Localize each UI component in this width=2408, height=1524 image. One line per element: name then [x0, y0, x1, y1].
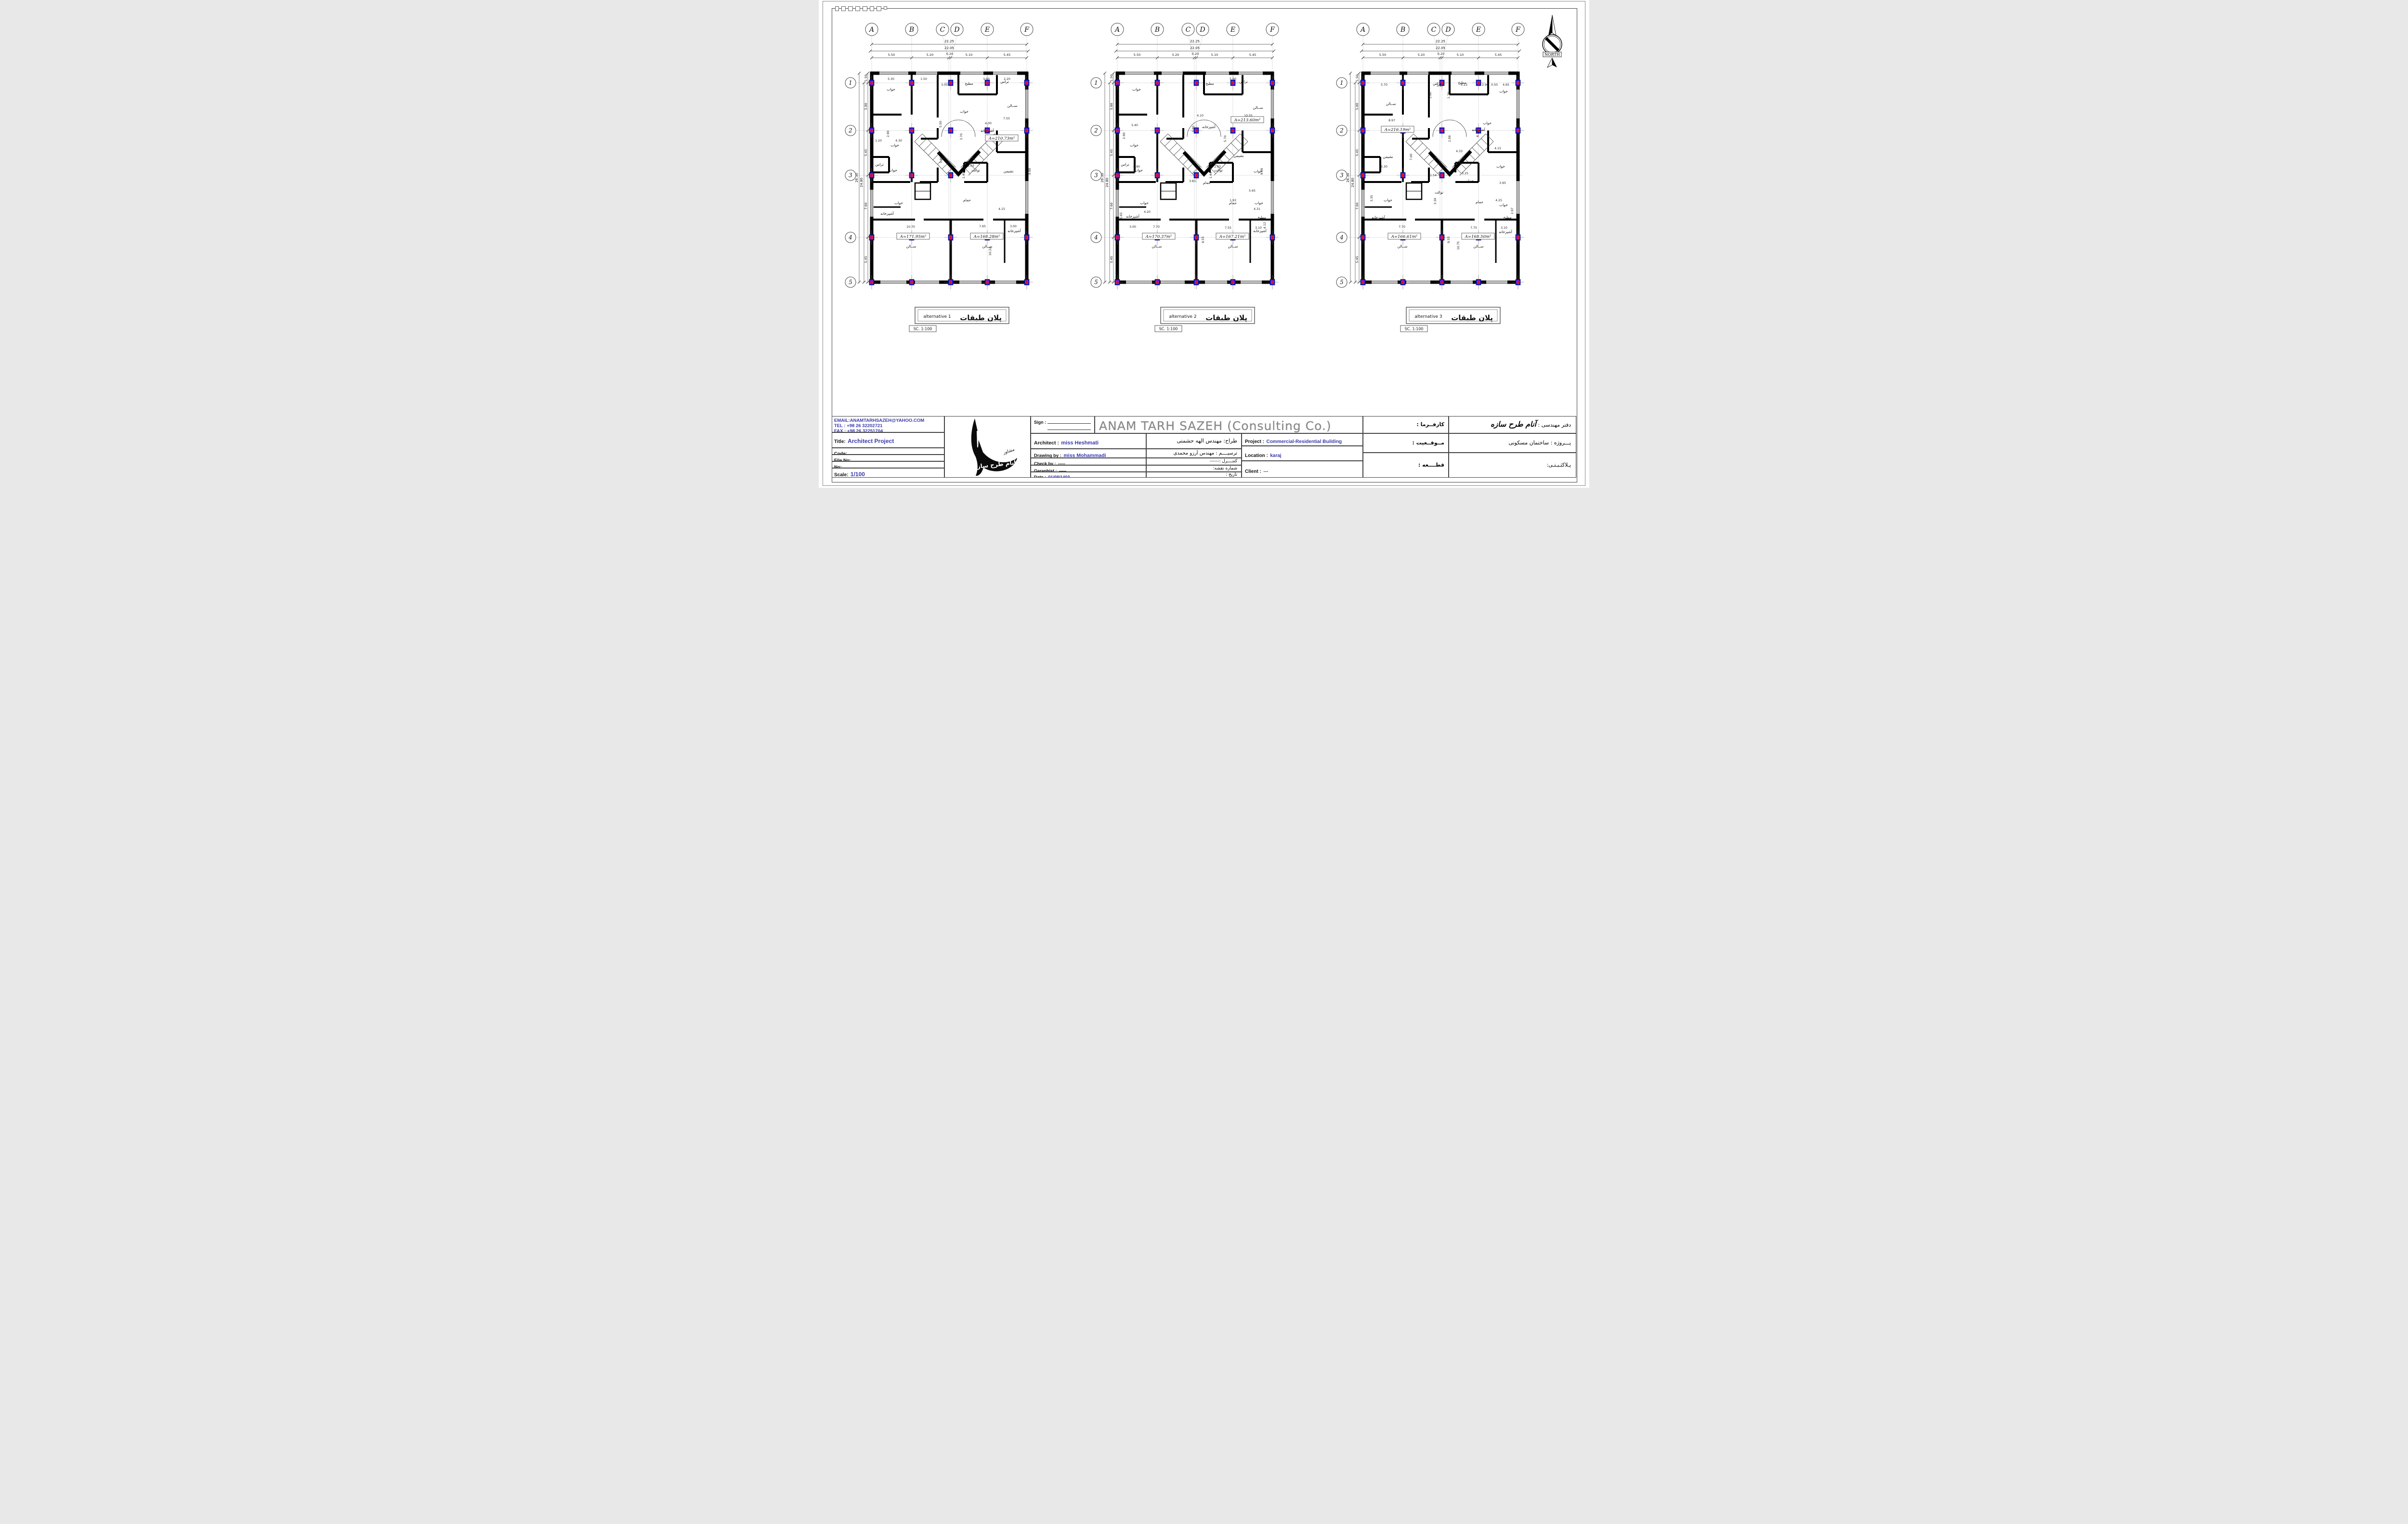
no-label: No: — [834, 465, 842, 468]
dim-label: 2.97 — [1511, 208, 1514, 214]
column-marker-core — [871, 174, 873, 177]
grid-number: 3 — [1340, 172, 1344, 179]
caption-title-fa: پلان طبقات — [1205, 313, 1247, 323]
dim-label: 3.80 — [1192, 126, 1195, 132]
grid-number: 5 — [849, 279, 852, 286]
corner-mark — [855, 6, 860, 11]
grid-number: 3 — [849, 172, 852, 179]
room-label: خواب — [889, 168, 897, 172]
stair-tread — [1169, 143, 1177, 151]
floor-plan-alternative-2: 22.2522.055.505.200.205.105.4526.3024.80… — [1088, 13, 1315, 350]
room-label: خواب — [890, 143, 899, 147]
dim-label: 5.45 — [1495, 53, 1502, 57]
corner-mark — [863, 6, 867, 11]
client-value: --- — [1263, 469, 1268, 474]
grid-letter: E — [1476, 26, 1481, 34]
dim-label: 1.90 — [1429, 92, 1432, 99]
dim-label: 4.20 — [1144, 210, 1151, 214]
column-marker-core — [1478, 281, 1479, 284]
company-banner: ANAM TARH SAZEH (Consulting Co.) — [1095, 416, 1363, 433]
dim-label: 7.60 — [864, 203, 868, 209]
dim-label: 3.70 — [960, 133, 963, 140]
check-by-box: Check by : ----- — [1031, 458, 1146, 465]
dim-label: 7.55 — [1225, 226, 1231, 230]
dim-label: 2.03 — [968, 164, 974, 168]
corner-mark — [841, 6, 846, 11]
grid-letter: E — [984, 26, 990, 34]
column-marker-core — [1402, 281, 1404, 284]
corner-mark — [835, 6, 839, 11]
dim-label: 22.25 — [1190, 39, 1200, 43]
room-label: خواب — [1132, 87, 1141, 91]
dim-label: 1.70 — [1447, 92, 1451, 99]
fa-qateh-box: قطــــعه : — [1363, 453, 1449, 478]
column-marker-core — [1362, 174, 1364, 177]
column-marker-core — [871, 130, 873, 132]
column-marker-core — [1156, 82, 1158, 84]
stair-landing — [942, 120, 975, 137]
column-marker-core — [1402, 174, 1404, 177]
room-label: خواب — [894, 201, 903, 205]
room-label: حمام — [963, 198, 971, 202]
dim-label: 4.90 — [1133, 165, 1140, 169]
column-marker-core — [950, 281, 952, 284]
fa-tarsim-box: ترسیــــم : مهندس آرزو محمدی — [1146, 449, 1242, 458]
dim-label: 5.45 — [1110, 256, 1113, 263]
dim-label: 5.50 — [1379, 53, 1386, 57]
dim-label: 9.88 — [1260, 168, 1264, 175]
project-box: Project : Commercial-Residential Buildin… — [1242, 433, 1363, 446]
area-label: A=168.28m² — [973, 234, 1000, 239]
dim-label: 3.00 — [941, 83, 948, 87]
corner-mark — [877, 6, 881, 11]
column-marker-core — [950, 82, 952, 84]
fileno-label: File No: — [834, 458, 851, 461]
project-label: Project : — [1245, 439, 1264, 444]
dim-label: 5.20 — [927, 53, 933, 57]
dim-label: 1.45 — [962, 172, 966, 179]
dim-label: 8.55 — [1202, 236, 1205, 243]
dim-label: 5.45 — [1355, 149, 1359, 156]
room-label: تراس — [1121, 162, 1129, 167]
column-marker-core — [1195, 174, 1197, 177]
code-label: Code: — [834, 451, 847, 455]
column-marker-core — [1271, 236, 1273, 239]
column-marker-core — [1026, 236, 1028, 239]
grid-number: 2 — [1339, 127, 1344, 134]
dim-label: 4.31 — [1254, 208, 1260, 211]
column-marker-core — [1362, 82, 1364, 84]
tel-text: TEL : +98 26 32202721 — [834, 423, 944, 429]
sign-line — [1047, 418, 1091, 424]
column-marker-core — [1517, 281, 1519, 284]
contact-box: EMAIL:ANAMTARHSAZEH@YAHOO.COM TEL : +98 … — [832, 416, 944, 432]
dim-label: 10.55 — [1244, 114, 1253, 117]
room-label: ســالن — [1398, 244, 1408, 248]
corner-registration-marks — [835, 6, 887, 11]
dim-label: 22.25 — [1436, 39, 1445, 43]
grid-letter: D — [954, 26, 959, 34]
date-value: 01/08/1403 — [1048, 475, 1070, 478]
dim-label: 22.25 — [944, 39, 954, 43]
room-label: نشیمن — [1233, 154, 1243, 158]
dim-label: 7.00 — [1410, 154, 1413, 160]
area-label: A=213.60m² — [1234, 118, 1261, 123]
grid-letter: D — [1445, 26, 1451, 34]
column-marker-core — [1441, 130, 1443, 132]
column-marker-core — [871, 281, 873, 284]
caption-alternative: alternative 1 — [923, 314, 951, 319]
dim-label: 4.15 — [1494, 147, 1501, 150]
dim-label: 3.39 — [1434, 198, 1437, 205]
stair-edge — [922, 134, 956, 168]
dim-label: 5.20 — [1418, 53, 1425, 57]
column-marker-core — [1362, 130, 1364, 132]
column-marker-core — [1232, 281, 1234, 284]
dim-label: 22.05 — [944, 46, 954, 50]
dim-label: 1.54 — [1430, 174, 1437, 177]
dim-label: 5.30 — [888, 78, 894, 81]
sign-label: Sign : — [1034, 420, 1046, 425]
column-marker-core — [911, 130, 913, 132]
corner-mark — [870, 6, 874, 11]
column-marker-core — [1232, 82, 1234, 84]
dim-label: 1.20 — [875, 139, 882, 143]
grid-letter: C — [1431, 26, 1437, 34]
fa-pelak-box: پـلاکثـبـتـی: — [1449, 453, 1576, 478]
fa-daftar-value: آنام طرح سازه — [1491, 420, 1536, 429]
column-marker-core — [1116, 82, 1118, 84]
fa-daftar-box: دفتر مهندسی : آنام طرح سازه — [1449, 416, 1576, 433]
column-marker-core — [950, 130, 952, 132]
grid-number: 4 — [1094, 234, 1098, 241]
room-label: مطبخ — [1503, 215, 1511, 220]
column-marker-core — [1517, 236, 1519, 239]
dim-label: 5.10 — [966, 53, 972, 57]
dim-label: 3.10 — [1501, 226, 1507, 230]
title-box: Title: Architect Project — [832, 432, 944, 448]
area-label: A=216.19m² — [1384, 128, 1411, 132]
corner-mark — [884, 6, 887, 10]
room-label: تراس — [875, 162, 883, 167]
dim-label: 7.60 — [1110, 203, 1113, 209]
room-label: خواب — [1384, 198, 1392, 202]
dim-label: 3.35 — [1370, 195, 1374, 202]
column-marker-core — [1116, 236, 1118, 239]
grid-letter: F — [1269, 26, 1275, 34]
stair-tread — [1420, 148, 1427, 156]
company-logo: مشاور آنام طرح سازه — [945, 417, 1031, 478]
column-marker-core — [1026, 130, 1028, 132]
scale-value: 1/100 — [851, 471, 865, 478]
column-marker-core — [1441, 236, 1443, 239]
geraphist-value: ----- — [1059, 469, 1066, 472]
dim-label: 5.10 — [1457, 53, 1464, 57]
stair-tread — [1415, 143, 1423, 151]
column-marker-core — [1362, 281, 1364, 284]
room-label: خواب — [960, 109, 968, 114]
dim-label: 3.81 — [1189, 180, 1196, 183]
column-marker-core — [911, 82, 913, 84]
date-label: Date : — [1034, 475, 1046, 478]
dim-label: 4.10 — [1197, 114, 1204, 117]
sign-box: Sign : — [1031, 416, 1095, 433]
stair-tread — [1240, 134, 1248, 142]
room-label: توالت — [971, 168, 980, 172]
dim-label: 5.45 — [864, 149, 868, 156]
room-label: ســالن — [1152, 244, 1162, 248]
dim-label: 5.70 — [1381, 83, 1387, 87]
column-marker-core — [1116, 130, 1118, 132]
dim-label: 2.20 — [1004, 78, 1010, 81]
room-label: خواب — [1483, 121, 1492, 125]
dim-label: 4.12 — [1263, 222, 1267, 229]
architect-label: Architect : — [1034, 440, 1059, 446]
dim-label: 2.90 — [887, 130, 890, 137]
area-label: A=167.21m² — [1219, 234, 1246, 239]
dim-label: 1.93 — [1230, 199, 1236, 202]
fa-karfarma-box: كارفــرما : — [1363, 416, 1449, 433]
dim-label: 4.65 — [1503, 83, 1509, 87]
grid-letter: C — [1186, 26, 1191, 34]
dim-label: 8.55 — [1447, 236, 1451, 243]
room-label: آشپزخانه — [1372, 215, 1386, 220]
sign-line — [1047, 425, 1091, 430]
dim-label: 4.00 — [985, 122, 992, 125]
room-label: آشپزخانه — [880, 211, 894, 216]
caption-title-fa: پلان طبقات — [1451, 313, 1493, 323]
grid-letter: E — [1230, 26, 1235, 34]
dim-label: 4.25 — [1495, 199, 1502, 202]
grid-number: 4 — [848, 234, 852, 241]
dim-label: 1.44 — [1209, 172, 1213, 179]
column-marker-core — [1362, 236, 1364, 239]
dim-label: 5.20 — [1172, 53, 1179, 57]
dim-label: 5.45 — [1249, 53, 1256, 57]
scale-note: SC. 1:100 — [1159, 327, 1178, 331]
drawing-by-box: Drawing by : miss Mohammadi — [1031, 449, 1146, 458]
column-marker-core — [1195, 82, 1197, 84]
fa-control-box: کنتــــرل :------ — [1146, 458, 1242, 465]
room-label: خواب — [1140, 201, 1149, 205]
column-marker-core — [1195, 236, 1197, 239]
room-label: آشپزخانه — [1126, 214, 1140, 219]
dim-label: 10.75 — [1457, 241, 1460, 250]
area-label: A=166.61m² — [1391, 234, 1418, 239]
dim-label: 24.80 — [1105, 178, 1109, 187]
location-box: Location : karaj — [1242, 446, 1363, 461]
grid-number: 5 — [1340, 279, 1344, 286]
fa-sheetno-box: شماره نقشه: — [1146, 465, 1242, 472]
client-label: Client : — [1245, 469, 1261, 474]
column-marker-core — [1156, 281, 1158, 284]
stair-tread — [985, 143, 993, 151]
column-marker-core — [1195, 130, 1197, 132]
architect-value: miss Heshmati — [1061, 440, 1099, 446]
dim-label: 7.55 — [1003, 117, 1010, 120]
column-marker-core — [1116, 174, 1118, 177]
dim-label: 7.75 — [1470, 226, 1477, 230]
corner-mark — [848, 6, 853, 11]
column-marker-core — [1026, 82, 1028, 84]
caption-alternative: alternative 3 — [1414, 314, 1442, 319]
dim-label: 0.50 — [1491, 83, 1498, 87]
dim-label: 24.80 — [1351, 178, 1355, 187]
dim-label: 3.95 — [1499, 182, 1506, 185]
room-label: توالت — [1214, 168, 1223, 172]
dim-label: 5.30 — [1381, 165, 1387, 169]
room-label: تراس — [1239, 79, 1247, 84]
geraphist-label: Geraphist : — [1034, 469, 1057, 472]
room-label: ســالن — [906, 244, 916, 248]
room-label: خواب — [887, 87, 895, 91]
dim-label: 4.15 — [998, 208, 1005, 211]
company-name-en: ANAM TARH SAZEH (Consulting Co.) — [1099, 419, 1332, 433]
date-box: Date : 01/08/1403 — [1031, 472, 1146, 478]
room-label: خواب — [1255, 201, 1263, 205]
grid-letter: B — [1400, 26, 1405, 34]
floor-plan-alternative-3: 22.2522.055.505.200.205.105.4526.3024.80… — [1334, 13, 1560, 350]
column-marker-core — [911, 174, 913, 177]
drawing-by-value: miss Mohammadi — [1063, 453, 1106, 458]
dim-label: 3.90 — [983, 78, 990, 81]
dim-label: 7.65 — [979, 225, 986, 228]
column-marker-core — [986, 82, 988, 84]
dim-label: 0.20 — [946, 52, 953, 56]
dim-label: 2.03 — [1214, 165, 1221, 169]
grid-number: 1 — [1340, 79, 1344, 86]
fax-text: FAX : +98 26 32251704 — [834, 429, 944, 432]
dim-label: 4.33 — [1456, 150, 1463, 153]
geraphist-box: Geraphist : ----- — [1031, 465, 1146, 472]
dim-label: 1.50 — [1110, 75, 1113, 81]
fa-mowqeiat-box: مــوقــعیت : — [1363, 433, 1449, 453]
title-value: Architect Project — [848, 438, 894, 444]
caption-alternative: alternative 2 — [1169, 314, 1196, 319]
dim-label: 5.50 — [888, 53, 895, 57]
stair-tread — [1174, 148, 1182, 156]
room-label: ســالن — [1474, 244, 1484, 248]
room-label: توالت — [1435, 190, 1443, 195]
room-label: خواب — [1499, 89, 1508, 93]
floor-plan-alternative-1: 22.2522.055.505.200.205.105.4526.3024.80… — [843, 13, 1069, 350]
scale-note: SC. 1:100 — [1405, 327, 1424, 331]
room-label: ســالن — [1253, 105, 1263, 110]
dim-label: 5.80 — [1355, 103, 1359, 110]
project-value: Commercial-Residential Building — [1266, 439, 1342, 444]
check-by-label: Check by : — [1034, 461, 1056, 465]
room-label: ســالن — [1008, 104, 1018, 108]
dim-label: 8.97 — [1388, 119, 1395, 122]
stair-tread — [1486, 134, 1493, 142]
column-marker-core — [1026, 281, 1028, 284]
dim-label: 4.18 — [1476, 130, 1479, 137]
logo-script-small: مشاور — [1002, 447, 1015, 456]
dim-label: 2.90 — [1482, 83, 1489, 87]
location-label: Location : — [1245, 453, 1268, 458]
dim-label: 5.50 — [939, 121, 942, 128]
dim-label: 5.70 — [1224, 135, 1227, 142]
room-label: حمام — [1203, 181, 1211, 185]
caption-title-fa: پلان طبقات — [960, 313, 1002, 323]
dim-label: 5.80 — [1110, 103, 1113, 110]
grid-number: 2 — [1094, 127, 1098, 134]
stair-landing — [1433, 120, 1466, 137]
dim-label: 22.05 — [1190, 46, 1200, 50]
room-label: آشپزخانه — [981, 128, 995, 133]
dim-label: 7.70 — [1399, 225, 1405, 229]
architect-box: Architect : miss Heshmati — [1031, 433, 1146, 449]
room-label: خواب — [1130, 143, 1139, 147]
grid-letter: B — [909, 26, 914, 34]
check-by-value: ----- — [1058, 461, 1065, 465]
code-box: Code: — [832, 448, 944, 455]
room-label: آشپزخانه — [1499, 229, 1513, 234]
dim-label: 5.65 — [1120, 212, 1123, 219]
column-marker-core — [1441, 281, 1443, 284]
grid-number: 2 — [848, 127, 852, 134]
dim-label: 3.17 — [1437, 84, 1443, 88]
room-label: مطبخ — [965, 81, 973, 86]
client-box: Client : --- — [1242, 461, 1363, 478]
column-marker-core — [1441, 174, 1443, 177]
location-value: karaj — [1270, 453, 1281, 458]
dim-label: 5.50 — [1134, 53, 1140, 57]
column-marker-core — [1195, 281, 1197, 284]
scale-box: Scale: 1/100 — [832, 468, 944, 478]
dim-label: 0.20 — [1438, 52, 1444, 56]
fileno-box: File No: — [832, 455, 944, 461]
column-marker-core — [1116, 281, 1118, 284]
room-label: ســالن — [1228, 244, 1238, 248]
room-label: حمام — [1466, 179, 1474, 183]
grid-letter: B — [1154, 26, 1160, 34]
drawing-by-label: Drawing by : — [1034, 453, 1061, 458]
room-label: نشیمن — [1383, 155, 1393, 159]
room-label: ســالن — [1386, 102, 1396, 106]
dim-label: 5.65 — [1249, 189, 1256, 193]
dim-label: 5.10 — [1211, 53, 1218, 57]
grid-letter: A — [1360, 26, 1365, 34]
no-box: No: — [832, 461, 944, 468]
stair-edge — [1413, 134, 1447, 168]
column-marker-core — [911, 281, 913, 284]
area-label: A=170.37m² — [1145, 234, 1172, 239]
dim-label: 1.50 — [920, 78, 927, 81]
dim-label: 2.88 — [1448, 135, 1452, 142]
column-marker-core — [871, 236, 873, 239]
column-marker-core — [1271, 82, 1273, 84]
dim-label: 5.80 — [864, 103, 868, 110]
dim-label: 1.50 — [1355, 75, 1359, 81]
column-marker-core — [1517, 82, 1519, 84]
column-marker-core — [1517, 130, 1519, 132]
grid-letter: F — [1515, 26, 1521, 34]
room-label: مطبخ — [1205, 81, 1214, 86]
dim-label: 5.45 — [864, 256, 868, 263]
dim-label: 3.00 — [1129, 225, 1136, 229]
fa-tarikh-box: تاریخ : — [1146, 472, 1242, 478]
grid-letter: A — [1114, 26, 1120, 34]
grid-letter: D — [1199, 26, 1205, 34]
column-marker-core — [1156, 130, 1158, 132]
stair-tread — [924, 143, 931, 151]
stair-tread — [1477, 143, 1484, 151]
column-marker-core — [986, 281, 988, 284]
column-marker-core — [1271, 130, 1273, 132]
stair-edge — [1168, 134, 1202, 168]
grid-number: 1 — [1094, 79, 1098, 86]
